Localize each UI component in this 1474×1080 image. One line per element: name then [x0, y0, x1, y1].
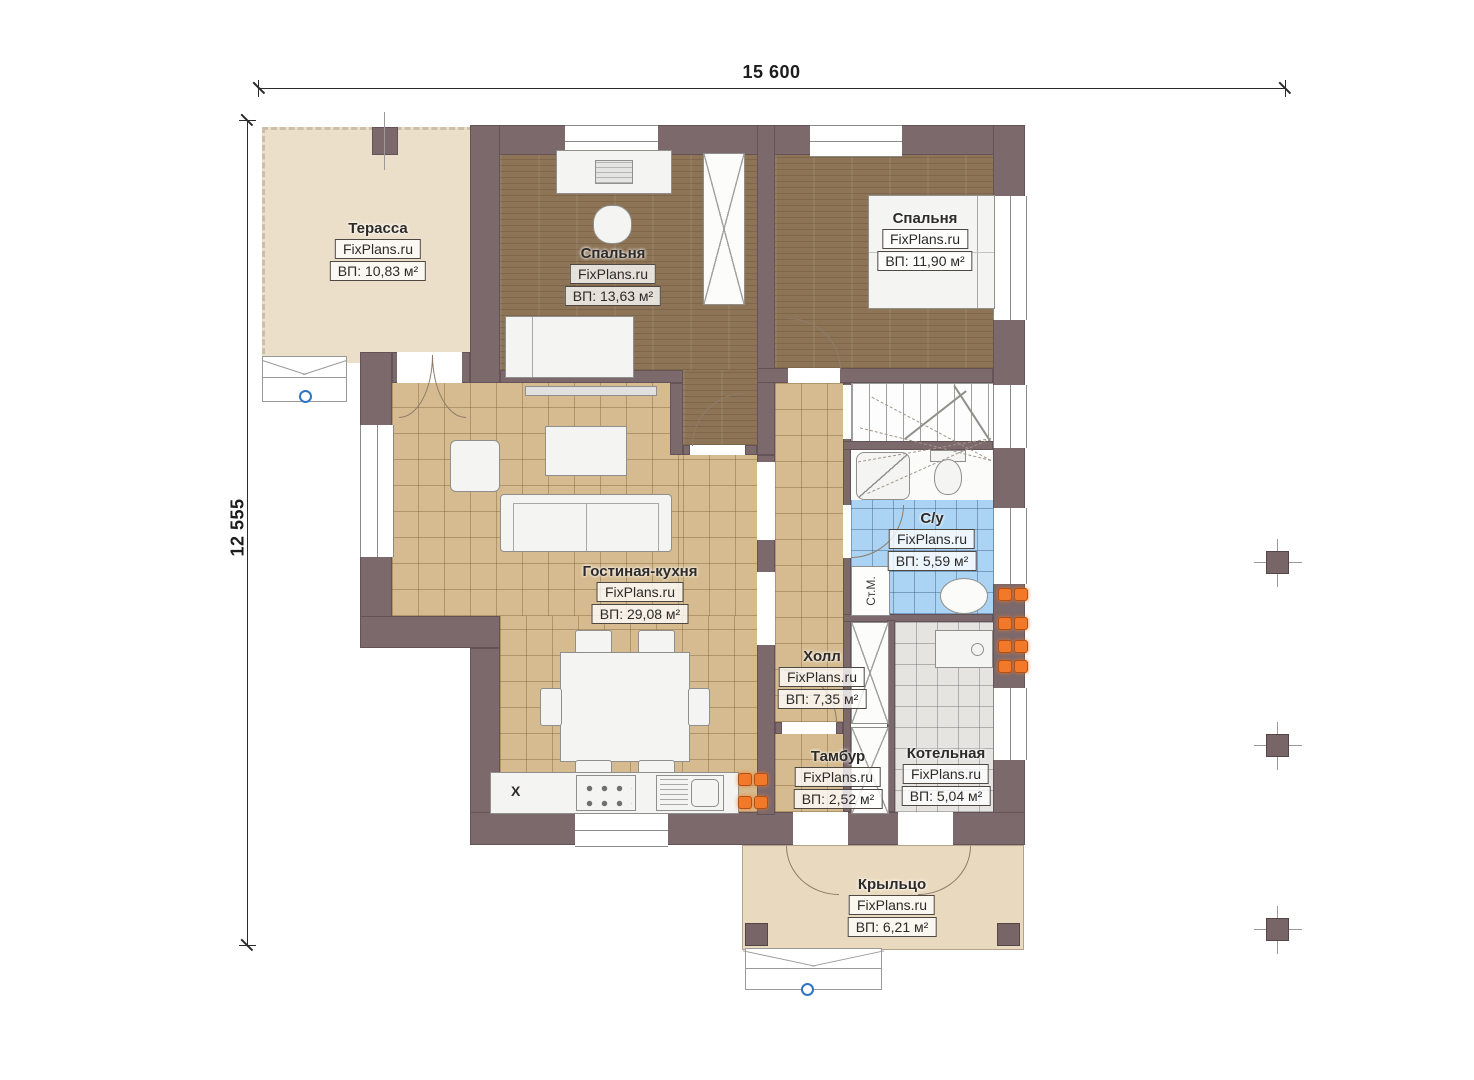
dimension-label-vertical: 12 555 [228, 488, 249, 568]
dining-chair [688, 688, 710, 726]
wall-terrace-bedroom1 [470, 125, 500, 383]
coffee-table [545, 426, 627, 476]
watermark: FixPlans.ru [779, 667, 865, 687]
room-name: Спальня [893, 210, 958, 227]
room-label-tambur: Тамбур FixPlans.ru ВП: 2,52 м² [794, 748, 883, 809]
dimension-ext [239, 120, 256, 121]
wall-hall-tambur-nub [775, 722, 782, 734]
kitchen-cabinet-mark: X [511, 783, 520, 799]
room-label-boiler: Котельная FixPlans.ru ВП: 5,04 м² [902, 745, 991, 806]
room-label-hall: Холл FixPlans.ru ВП: 7,35 м² [778, 648, 867, 709]
armchair [450, 440, 500, 492]
room-area: ВП: 5,59 м² [888, 551, 977, 571]
sofa [500, 494, 672, 552]
wall-terrace-column [372, 127, 398, 155]
window-stairs [993, 385, 1027, 448]
dining-chair [575, 630, 612, 654]
room-area: ВП: 13,63 м² [565, 286, 661, 306]
bed-pillow [506, 317, 533, 377]
radiator [998, 588, 1028, 601]
pergola-column [1266, 918, 1289, 941]
watermark: FixPlans.ru [597, 582, 683, 602]
dimension-ext [1285, 80, 1286, 97]
watermark: FixPlans.ru [570, 264, 656, 284]
room-name: Тамбур [811, 748, 865, 765]
room-label-bedroom1: Спальня FixPlans.ru ВП: 13,63 м² [565, 245, 661, 306]
step-diagonal [812, 950, 885, 966]
room-name: С/у [920, 510, 943, 527]
doorway-bathroom [843, 505, 851, 558]
radiator [738, 773, 768, 786]
stove-burners [578, 777, 632, 807]
tv-console [525, 386, 657, 396]
watermark: FixPlans.ru [795, 767, 881, 787]
level-marker [801, 983, 814, 996]
step-diagonal [303, 360, 347, 375]
shower [856, 452, 910, 500]
watermark: FixPlans.ru [849, 895, 935, 915]
doorway-stairs [843, 385, 851, 439]
room-name: Терасса [348, 220, 407, 237]
window-kitchen [575, 812, 668, 847]
wall-living-jut [360, 616, 500, 648]
axis-line [384, 112, 385, 170]
bed-single [505, 316, 634, 378]
porch-column [997, 923, 1020, 946]
dimension-line-horizontal [258, 88, 1285, 89]
radiator [738, 796, 768, 809]
kitchen-sink [656, 775, 724, 811]
room-name: Котельная [907, 745, 986, 762]
wall-top [470, 125, 1025, 155]
room-name: Гостиная-кухня [583, 563, 698, 580]
watermark: FixPlans.ru [903, 764, 989, 784]
doorway-porch [793, 812, 848, 845]
room-label-bedroom2: Спальня FixPlans.ru ВП: 11,90 м² [877, 210, 972, 271]
printer [595, 160, 633, 184]
porch-steps [745, 948, 882, 990]
room-area: ВП: 6,21 м² [848, 917, 937, 937]
doorway-bedroom1 [690, 445, 745, 455]
radiator [998, 640, 1028, 653]
doorway-boiler-exterior [898, 812, 953, 845]
window-bedroom2 [810, 125, 902, 157]
porch-column [745, 923, 768, 946]
dining-table [560, 652, 690, 762]
dimension-label-horizontal: 15 600 [258, 62, 1285, 83]
washing-machine: Ст.М. [851, 566, 890, 616]
wall-nook-nub [745, 445, 757, 455]
sink-drainboard [660, 779, 688, 805]
dining-chair [540, 688, 562, 726]
watermark: FixPlans.ru [335, 239, 421, 259]
watermark: FixPlans.ru [889, 529, 975, 549]
opening-living-hall-1 [757, 462, 775, 540]
wardrobe [703, 153, 745, 305]
room-area: ВП: 29,08 м² [592, 604, 688, 624]
room-area: ВП: 2,52 м² [794, 789, 883, 809]
room-area: ВП: 11,90 м² [877, 251, 972, 271]
level-marker [299, 390, 312, 403]
step-line [263, 377, 346, 378]
washing-machine-label: Ст.М. [864, 576, 878, 606]
desk-chair [593, 205, 632, 244]
opening-living-hall-2 [757, 572, 775, 645]
room-name: Холл [803, 648, 841, 665]
wall-hall-tambur-nub [836, 722, 843, 734]
boiler-dial [971, 643, 984, 656]
doorway-bedroom2 [788, 368, 840, 383]
sofa-divider [586, 503, 587, 551]
pergola-column [1266, 734, 1289, 757]
room-label-terrace: Терасса FixPlans.ru ВП: 10,83 м² [330, 220, 426, 281]
radiator [998, 617, 1028, 630]
step-diagonal [262, 360, 306, 375]
window-bathroom [993, 508, 1027, 584]
room-area: ВП: 10,83 м² [330, 261, 426, 281]
window-boiler [993, 688, 1027, 760]
room-name: Спальня [581, 245, 646, 262]
floor-plan: 15 600 12 555 [0, 0, 1474, 1080]
watermark: FixPlans.ru [882, 229, 968, 249]
room-label-bathroom: С/у FixPlans.ru ВП: 5,59 м² [888, 510, 977, 571]
room-name: Крыльцо [858, 876, 926, 893]
pergola-column [1266, 551, 1289, 574]
radiator [998, 660, 1028, 673]
dining-chair [638, 630, 675, 654]
window-bedroom2-right [993, 196, 1027, 320]
room-area: ВП: 5,04 м² [902, 786, 991, 806]
window-living-left [360, 425, 394, 557]
step-diagonal [743, 950, 816, 966]
bathroom-sink [940, 578, 988, 614]
toilet-bowl [934, 459, 962, 495]
boiler-unit [935, 630, 993, 668]
dimension-ext [239, 945, 256, 946]
room-area: ВП: 7,35 м² [778, 689, 867, 709]
wall-bedroom-divider [757, 125, 775, 455]
wall-nook-left [670, 383, 683, 455]
sink-basin [691, 779, 719, 807]
room-label-porch: Крыльцо FixPlans.ru ВП: 6,21 м² [848, 876, 937, 937]
wall-nook-nub [683, 445, 690, 455]
room-label-living: Гостиная-кухня FixPlans.ru ВП: 29,08 м² [583, 563, 698, 624]
step-line [746, 968, 881, 969]
